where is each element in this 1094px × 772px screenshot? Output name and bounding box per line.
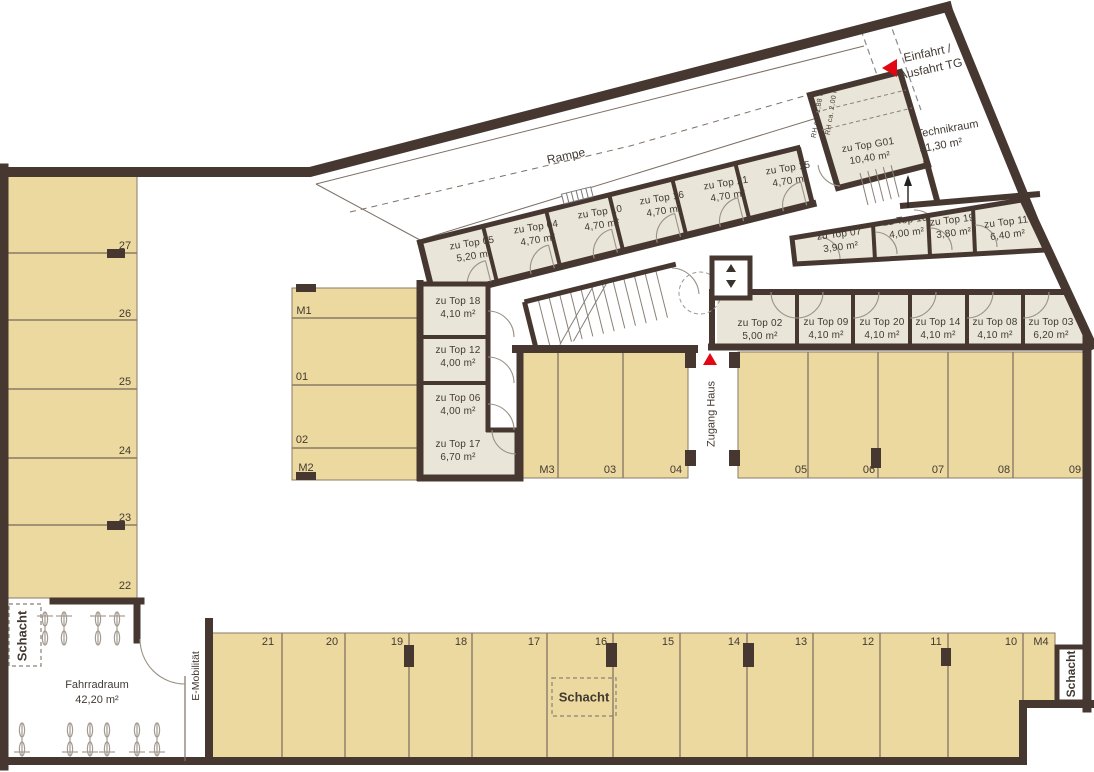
stall-m3: M3 (539, 464, 554, 476)
stall-17: 17 (528, 636, 540, 648)
stall-21: 21 (262, 636, 274, 648)
room-zu-top-08: zu Top 084,10 m² (973, 316, 1018, 342)
e-mobility-strip (140, 639, 185, 761)
room-zu-top-06: zu Top 064,00 m² (436, 392, 481, 418)
stall-m4: M4 (1033, 636, 1048, 648)
room-zu-top-19: zu Top 193,80 m² (929, 211, 977, 242)
room-zu-top-12: zu Top 124,00 m² (436, 344, 481, 370)
stall-20: 20 (326, 636, 338, 648)
stall-25: 25 (119, 376, 131, 388)
stall-18: 18 (455, 636, 467, 648)
floor-plan-geometry (0, 0, 1094, 772)
room-zu-top-07: zu Top 073,90 m² (816, 225, 864, 256)
shaft-middle-label: Schacht (559, 690, 610, 705)
room-zu-top-20: zu Top 204,10 m² (860, 316, 905, 342)
room-zu-top-09: zu Top 094,10 m² (804, 316, 849, 342)
stall-26: 26 (119, 308, 131, 320)
stall-14: 14 (728, 636, 740, 648)
stall-10: 10 (1005, 636, 1017, 648)
room-zu-top-13: zu Top 134,00 m² (882, 211, 930, 242)
stall-08: 08 (998, 464, 1010, 476)
e-mobility-label: E-Mobilität (190, 651, 202, 701)
stall-22: 22 (119, 580, 131, 592)
stall-03: 03 (604, 464, 616, 476)
stall-16: 16 (595, 636, 607, 648)
stall-02: 02 (296, 434, 308, 446)
room-zu-top-02: zu Top 025,00 m² (738, 317, 783, 343)
room-zu-top-18: zu Top 184,10 m² (436, 295, 481, 321)
staircase (524, 264, 721, 352)
bicycle-room-label: Fahrradraum 42,20 m² (65, 678, 129, 708)
stall-13: 13 (795, 636, 807, 648)
room-zu-top-03: zu Top 036,20 m² (1029, 316, 1074, 342)
stall-06: 06 (863, 464, 875, 476)
stall-m1: M1 (296, 305, 311, 317)
garage-floor-plan: Rampe Einfahrt / Ausfahrt TG Technikraum… (0, 0, 1094, 772)
stall-09: 09 (1069, 464, 1081, 476)
stall-m2: M2 (298, 462, 313, 474)
stall-15: 15 (662, 636, 674, 648)
stall-05: 05 (795, 464, 807, 476)
stall-23: 23 (119, 512, 131, 524)
room-zu-top-14: zu Top 144,10 m² (916, 316, 961, 342)
stall-19: 19 (391, 636, 403, 648)
stall-24: 24 (119, 445, 131, 457)
house-access-label: Zugang Haus (705, 381, 720, 447)
stall-07: 07 (932, 464, 944, 476)
room-zu-top-11: zu Top 116,40 m² (983, 213, 1030, 244)
stall-12: 12 (862, 636, 874, 648)
stall-01: 01 (296, 371, 308, 383)
shaft-left-label: Schacht (15, 611, 30, 662)
elevator (712, 258, 750, 298)
stall-11: 11 (930, 636, 941, 648)
house-access-arrow-icon (703, 353, 717, 365)
stall-04: 04 (670, 464, 682, 476)
shaft-right-label: Schacht (1064, 651, 1078, 698)
stall-27: 27 (119, 240, 131, 252)
room-zu-top-17: zu Top 176,70 m² (436, 438, 481, 464)
